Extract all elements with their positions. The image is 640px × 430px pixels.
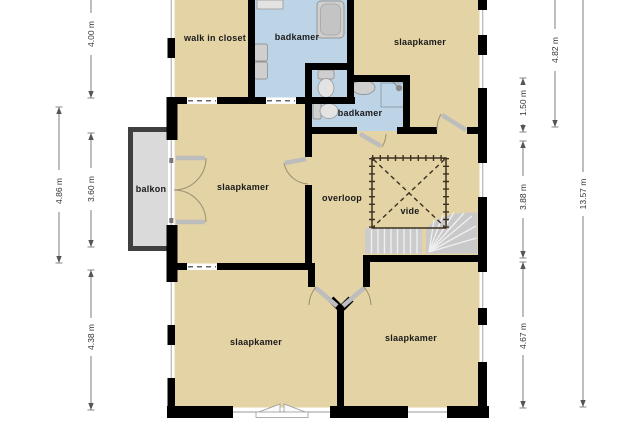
dimension-right-4-82: 4.82 m [550,0,560,127]
wall [168,38,176,58]
floor-plan: walk in closet badkamer slaapkamer badka… [0,0,640,430]
room-label-vide: vide [400,206,419,216]
wall [350,75,410,82]
svg-text:4.38 m: 4.38 m [86,324,96,350]
room-label-overloop: overloop [322,193,362,203]
exterior-door-sill [256,412,308,418]
room-label-balkon: balkon [136,184,167,194]
wall [167,225,178,282]
dimension-right-1-50: 1.50 m [518,78,528,132]
wall [168,325,176,345]
dimension-right-4-67: 4.67 m [518,262,528,408]
wall [347,0,354,104]
room-label-walk-in-closet: walk in closet [183,33,246,43]
toilet2-bowl-icon [320,104,338,119]
dimension-right-3-88: 3.88 m [518,141,528,258]
dimension-left-4-38: 4.38 m [86,270,96,410]
wall [217,263,315,270]
svg-text:3.60 m: 3.60 m [86,176,96,202]
wall [407,127,437,134]
wall [363,255,481,262]
svg-text:13.57 m: 13.57 m [578,179,588,210]
svg-text:4.86 m: 4.86 m [54,178,64,204]
wall [337,306,344,412]
washbasin-icon [352,81,375,95]
door-hinge [169,218,173,223]
wall [478,0,487,10]
svg-text:4.00 m: 4.00 m [86,21,96,47]
wall [478,35,487,55]
wall [447,406,489,418]
dimension-right-13-57: 13.57 m [578,0,588,407]
toilet-tank-icon [318,70,334,79]
room-label-badkamer-middle: badkamer [338,108,383,118]
bathtub-inner [321,4,341,35]
floor-plan-canvas: walk in closet badkamer slaapkamer badka… [0,0,640,430]
wall [248,0,255,104]
door-hinge [169,158,173,163]
stairs-left-flight [365,228,422,254]
wall [217,97,266,104]
toilet-bowl-icon [318,79,334,98]
sink-icon-2 [255,62,268,79]
svg-text:4.67 m: 4.67 m [518,323,528,349]
svg-text:1.50 m: 1.50 m [518,90,528,116]
wall [296,97,355,104]
room-label-slaapkamer-top-right: slaapkamer [394,37,446,47]
wall [172,263,187,270]
wall [478,308,487,325]
wall [330,406,408,418]
wall [175,97,187,104]
dimension-left-4-00: 4.00 m [86,0,96,98]
svg-text:4.82 m: 4.82 m [550,37,560,63]
wall [305,63,312,157]
dimension-left-3-60: 3.60 m [86,133,96,247]
wall [305,185,312,270]
dimension-left-4-86: 4.86 m [54,107,64,263]
room-label-badkamer-top: badkamer [275,32,320,42]
svg-text:3.88 m: 3.88 m [518,184,528,210]
wall [308,127,357,134]
wall [167,406,233,418]
sink-icon-1 [255,44,268,61]
wall [478,197,487,272]
shower-tray-icon [257,0,283,9]
room-label-slaapkamer-bottom-left: slaapkamer [230,337,282,347]
wall [403,82,410,131]
wall [478,88,487,163]
room-label-slaapkamer-bottom-right: slaapkamer [385,333,437,343]
room-label-slaapkamer-middle-left: slaapkamer [217,182,269,192]
wall [305,63,354,70]
